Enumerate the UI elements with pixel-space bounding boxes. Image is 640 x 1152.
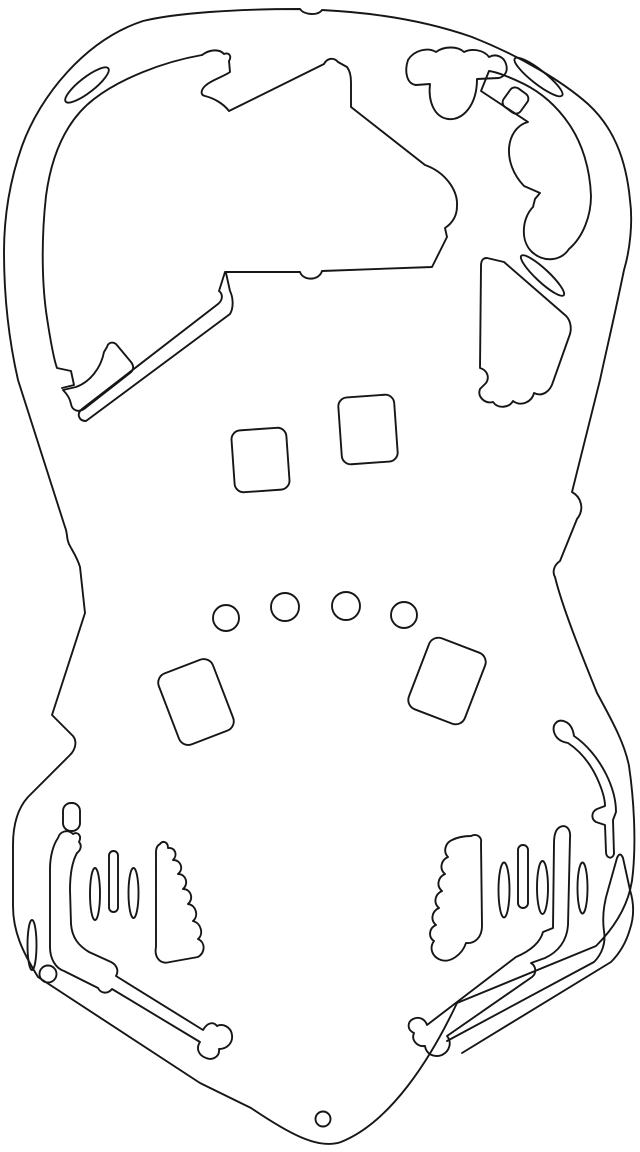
left-slingshot-cutout [156, 842, 204, 963]
right-guide-slot-ellipse-1 [499, 863, 510, 918]
main-playfield-cutout [79, 50, 457, 421]
outer-boundary [4, 9, 634, 1144]
cutout-shapes-layer [4, 9, 634, 1144]
right-scallop-cutout [481, 71, 591, 259]
arch-inner-rail [43, 55, 202, 388]
rollover-hole-2 [271, 593, 299, 621]
top-right-small-square [500, 85, 531, 116]
insert-rect-right [338, 394, 399, 465]
left-guide-slot-ellipse-2 [129, 868, 139, 918]
left-outer-slot-ellipse [28, 920, 37, 970]
right-hook-cutout [554, 721, 616, 858]
rollover-hole-4 [391, 602, 417, 628]
right-slingshot-cutout [430, 835, 482, 961]
top-right-cloud-cutout [406, 48, 506, 120]
bottom-apron-hole [316, 1112, 331, 1127]
right-outlane-channel [447, 855, 633, 1054]
insert-rect-lower-left [155, 656, 236, 748]
left-guide-slot-bar [109, 851, 118, 912]
drawing-canvas [0, 0, 640, 1152]
right-guide-slot-bar [518, 845, 528, 908]
rollover-hole-3 [332, 592, 360, 620]
left-small-hole [40, 966, 57, 983]
right-guide-slot-ellipse-3 [578, 863, 588, 914]
left-guide-slot-ellipse-1 [90, 868, 100, 920]
template-line-drawing [0, 0, 640, 1152]
right-guide-slot-ellipse-2 [537, 861, 548, 914]
insert-rect-left [231, 427, 290, 493]
left-small-slot [63, 803, 80, 831]
insert-rect-lower-right [405, 635, 488, 727]
rollover-hole-1 [213, 605, 239, 631]
left-lane-guide-cutout [50, 831, 232, 1059]
